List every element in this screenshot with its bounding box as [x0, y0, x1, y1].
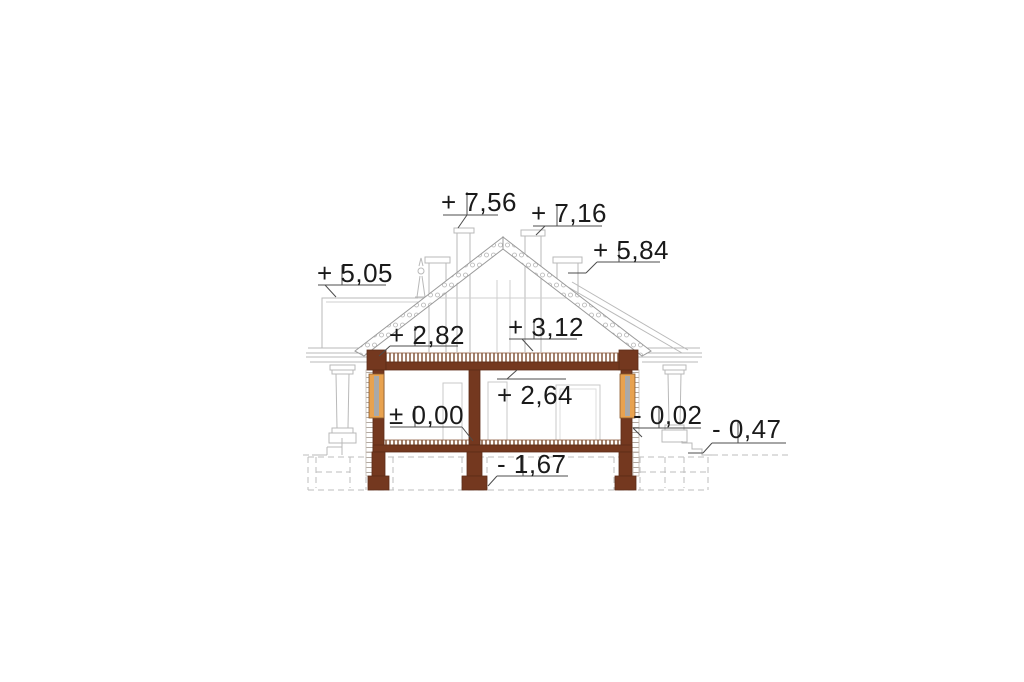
- elevation-label-left-ridge: + 5,05: [317, 260, 393, 286]
- section-drawing-page: + 7,56 + 7,16 + 5,84 + 5,05 + 2,82 + 3,1…: [0, 0, 1024, 682]
- left-steps: [312, 438, 342, 455]
- elevation-label-ceiling-height: + 2,64: [497, 382, 573, 408]
- elevation-label-second-chimney: + 7,16: [531, 200, 607, 226]
- elevation-label-terrace-floor: - 0,02: [633, 402, 703, 428]
- elevation-label-zero-level: ± 0,00: [389, 402, 464, 428]
- elevation-label-grade: - 0,47: [712, 416, 782, 442]
- elevation-label-main-chimney: + 7,56: [441, 189, 517, 215]
- left-window: [369, 374, 384, 418]
- left-porch-column: [329, 365, 356, 443]
- roof-finial: [415, 258, 427, 297]
- elevation-label-foundation: - 1,67: [497, 451, 567, 477]
- elevation-label-wall-plate: + 2,82: [389, 322, 465, 348]
- elevation-label-side-chimney: + 5,84: [593, 237, 669, 263]
- elevation-label-attic: + 3,12: [508, 314, 584, 340]
